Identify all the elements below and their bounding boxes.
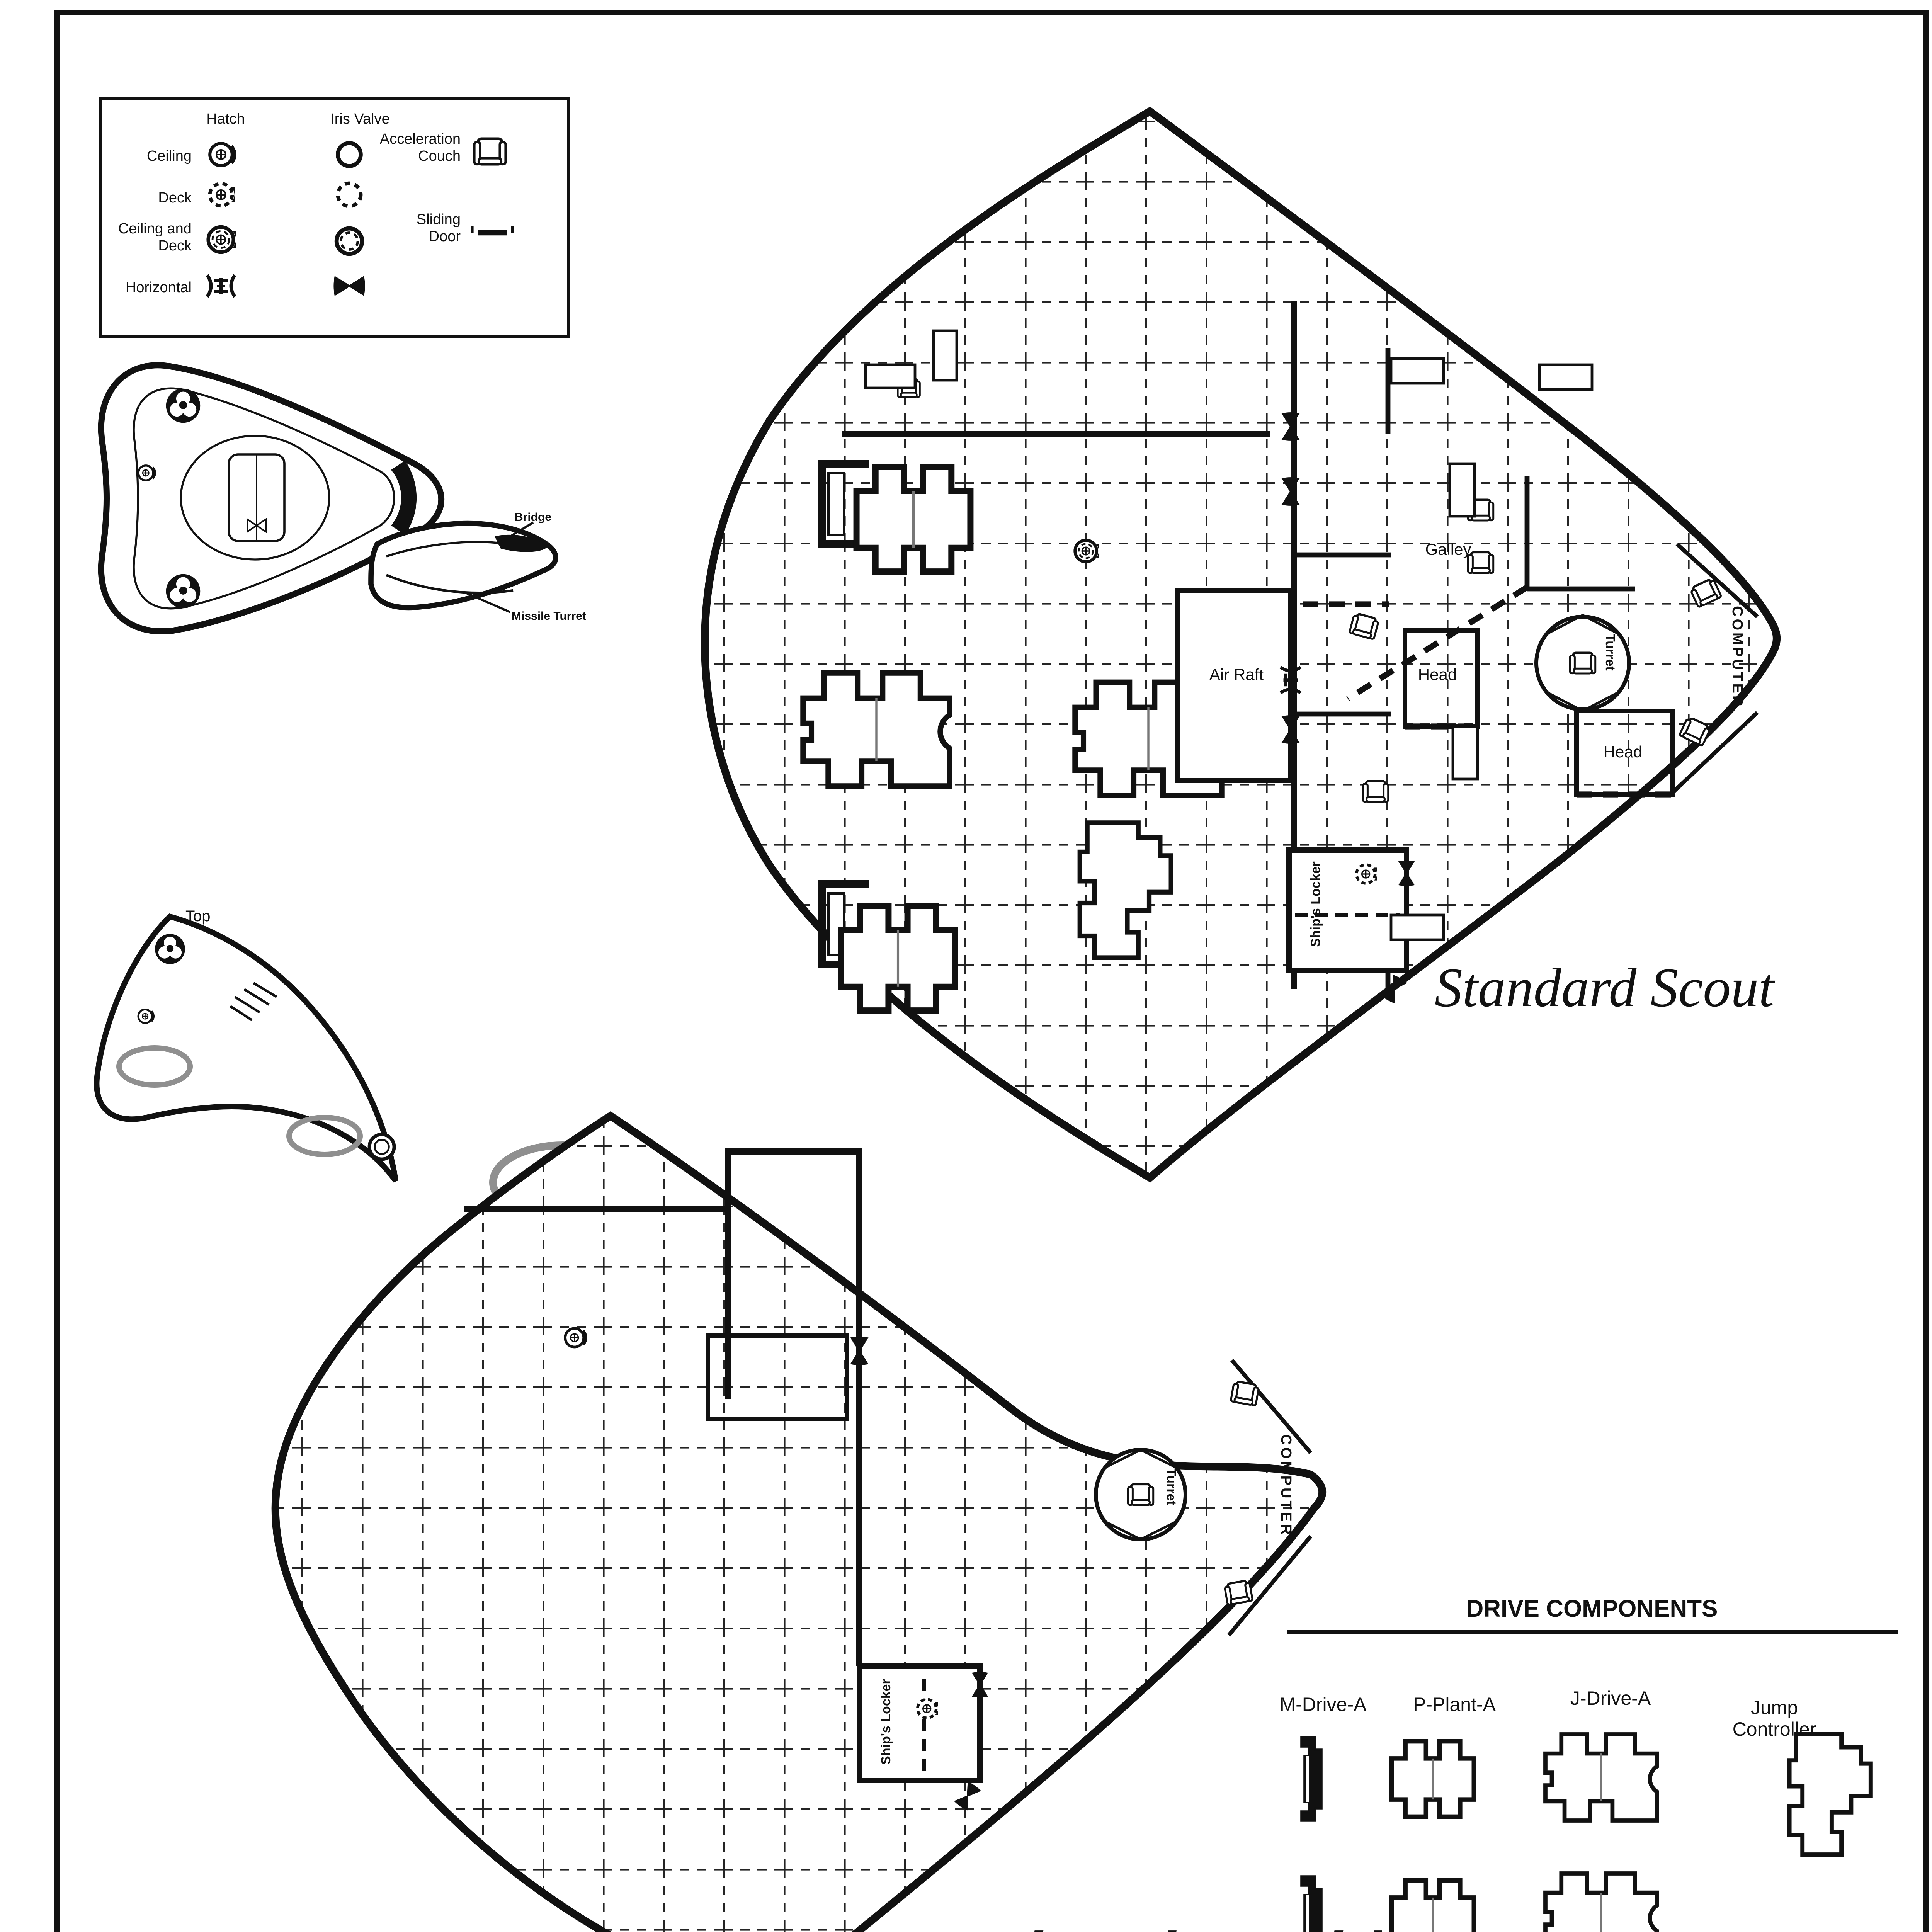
j-drive-label: J-Drive-A — [1570, 1688, 1651, 1709]
missile-turret-label: Missile Turret — [512, 609, 586, 623]
m-drive-label: M-Drive-A — [1280, 1694, 1367, 1716]
p-plant-part — [1392, 1742, 1474, 1817]
legend-box: Hatch Iris Valve Ceiling Deck Ceiling an… — [99, 97, 570, 338]
air-raft-label: Air Raft — [1209, 666, 1264, 685]
deck-hatch-icon — [210, 184, 235, 206]
legend-row-horizontal-label: Horizontal — [96, 280, 192, 297]
side-view-silhouette — [371, 522, 556, 612]
acceleration-couch-icon — [474, 139, 506, 164]
air-raft-bay — [1178, 590, 1291, 781]
head-lower-label: Head — [1604, 743, 1642, 762]
m-drive-part — [1301, 1737, 1321, 1821]
ceiling-hatch-icon — [565, 1328, 586, 1347]
ships-locker-label-standard: Ship's Locker — [1308, 861, 1323, 947]
ceiling-hatch-icon — [138, 466, 155, 480]
legend-heading-iris-valve: Iris Valve — [330, 111, 390, 128]
computer-label-stripped: COMPUTER — [1277, 1434, 1294, 1537]
ceiling-hatch-icon — [138, 1009, 153, 1023]
p-plant-label: P-Plant-A — [1413, 1694, 1496, 1716]
drive-components-title: DRIVE COMPONENTS — [1466, 1597, 1718, 1624]
ceiling-and-deck-hatch-icon — [208, 227, 236, 252]
legend-row-ceiling-label: Ceiling — [96, 148, 192, 165]
legend-row-ceiling-and-deck-label: Ceiling and Deck — [90, 221, 192, 255]
thruster-trilobe-icon — [155, 934, 185, 964]
ceiling-and-deck-hatch-icon — [1075, 540, 1099, 562]
computer-label-standard: COMPUTER — [1728, 606, 1745, 709]
bridge-label: Bridge — [515, 510, 551, 524]
legend-row-deck-label: Deck — [96, 190, 192, 207]
ships-locker-room — [859, 1666, 980, 1781]
ships-locker-room — [1289, 850, 1406, 971]
top-view-silhouette — [97, 917, 396, 1181]
galley-label: Galley — [1425, 541, 1471, 560]
stripped-surplus-plan — [276, 1116, 1323, 1932]
thruster-trilobe-icon — [166, 389, 200, 423]
legend-heading-hatch: Hatch — [206, 111, 245, 128]
thruster-trilobe-icon — [166, 574, 200, 608]
j-drive-part — [1545, 1735, 1657, 1821]
ceiling-hatch-icon — [210, 143, 235, 166]
horizontal-hatch-icon — [207, 275, 235, 297]
head-upper-label: Head — [1418, 666, 1457, 685]
top-view-label: Top — [185, 909, 211, 926]
j-drive-part — [1545, 1874, 1657, 1932]
jump-controller-part — [1789, 1734, 1871, 1854]
p-plant-part — [1392, 1881, 1474, 1932]
turret-label-standard: Turret — [1603, 634, 1618, 671]
legend-sliding-door-label: Sliding Door — [383, 212, 461, 246]
deck-iris-valve-icon — [338, 183, 361, 206]
legend-acceleration-couch-label: Acceleration Couch — [337, 131, 461, 165]
drive-component-parts — [1287, 1632, 1898, 1932]
ships-locker-label-stripped: Ship's Locker — [878, 1679, 893, 1765]
jump-controller-label: Jump Controller — [1709, 1697, 1839, 1740]
turret-label-stripped: Turret — [1164, 1468, 1179, 1505]
standard-scout-title: Standard Scout — [1435, 955, 1774, 1020]
ceiling-and-deck-iris-valve-icon — [337, 228, 362, 254]
sliding-door-icon — [472, 226, 512, 233]
horizontal-iris-valve-icon — [333, 276, 365, 296]
deck-plan-sheet: Hatch Iris Valve Ceiling Deck Ceiling an… — [0, 0, 1932, 1932]
stripped-surplus-title: Stripped Surplus Model — [855, 1918, 1383, 1932]
